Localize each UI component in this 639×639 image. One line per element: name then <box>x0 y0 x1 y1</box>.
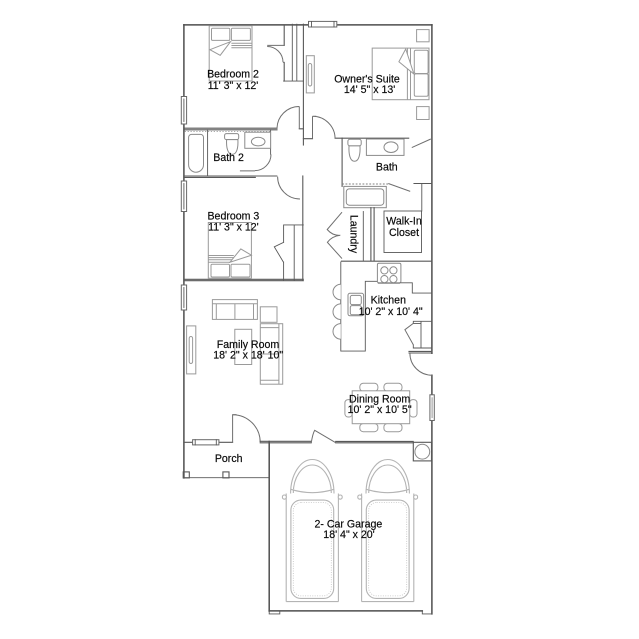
svg-text:10' 2" x 10' 5": 10' 2" x 10' 5" <box>348 404 412 416</box>
svg-text:Laundry: Laundry <box>348 215 360 254</box>
svg-text:Bedroom 2: Bedroom 2 <box>207 68 259 80</box>
svg-text:Bath: Bath <box>376 162 398 174</box>
svg-text:11' 3" x 12': 11' 3" x 12' <box>208 221 259 233</box>
svg-text:Walk-In: Walk-In <box>386 215 422 227</box>
svg-text:14' 5" x 13': 14' 5" x 13' <box>344 84 395 96</box>
svg-text:18' 4" x 20': 18' 4" x 20' <box>323 529 374 541</box>
svg-text:Closet: Closet <box>389 227 419 239</box>
svg-text:10' 2" x 10' 4": 10' 2" x 10' 4" <box>359 306 423 318</box>
svg-text:11' 3" x 12': 11' 3" x 12' <box>208 80 259 92</box>
svg-text:Porch: Porch <box>215 453 243 465</box>
svg-text:18' 2" x 18' 10": 18' 2" x 18' 10" <box>213 349 283 361</box>
svg-text:Bath 2: Bath 2 <box>213 152 244 164</box>
svg-text:Kitchen: Kitchen <box>371 295 406 307</box>
